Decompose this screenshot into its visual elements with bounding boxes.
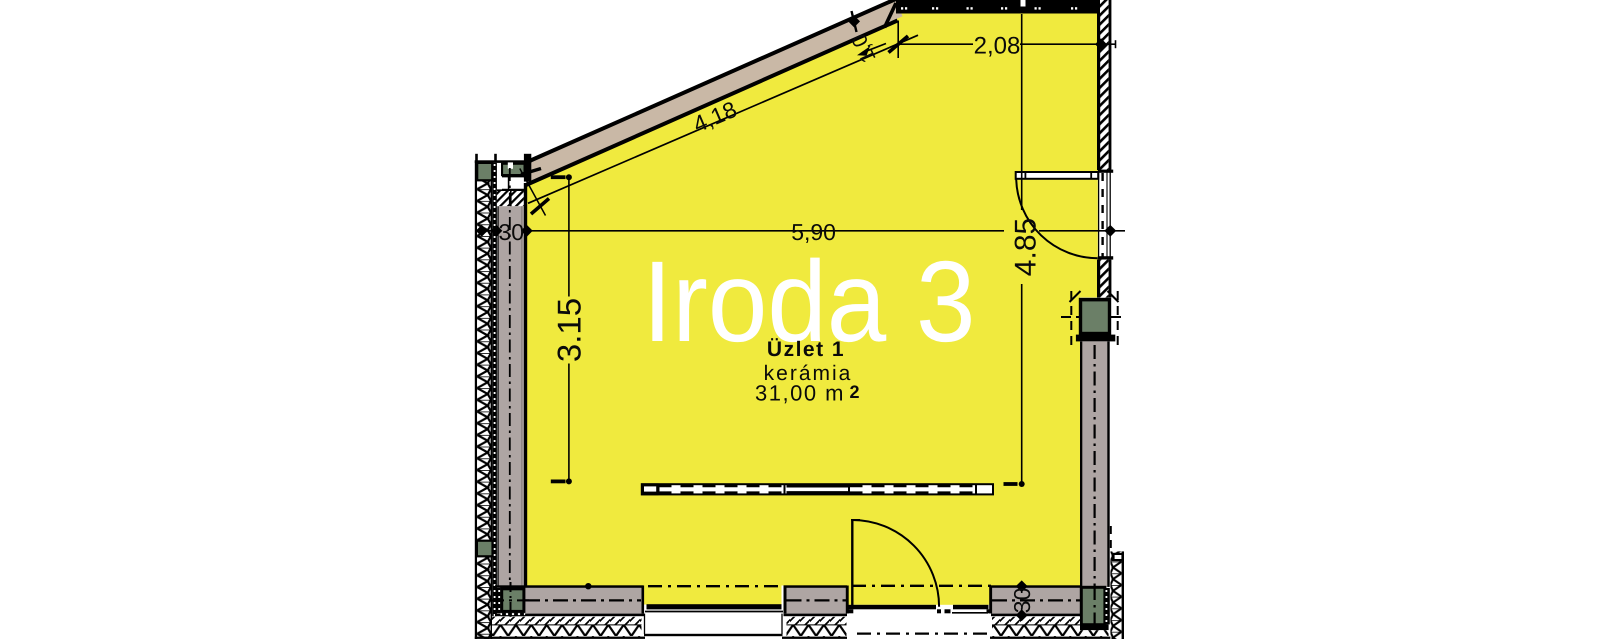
svg-text:31,00 m: 31,00 m	[755, 381, 845, 406]
svg-text:3.15: 3.15	[551, 298, 588, 362]
svg-text:2: 2	[850, 382, 860, 402]
svg-text:30: 30	[1009, 588, 1035, 614]
svg-text:2,08: 2,08	[974, 33, 1021, 60]
svg-text:30: 30	[499, 219, 525, 245]
svg-text:4.85: 4.85	[1009, 218, 1042, 276]
svg-text:Üzlet 1: Üzlet 1	[767, 338, 845, 361]
